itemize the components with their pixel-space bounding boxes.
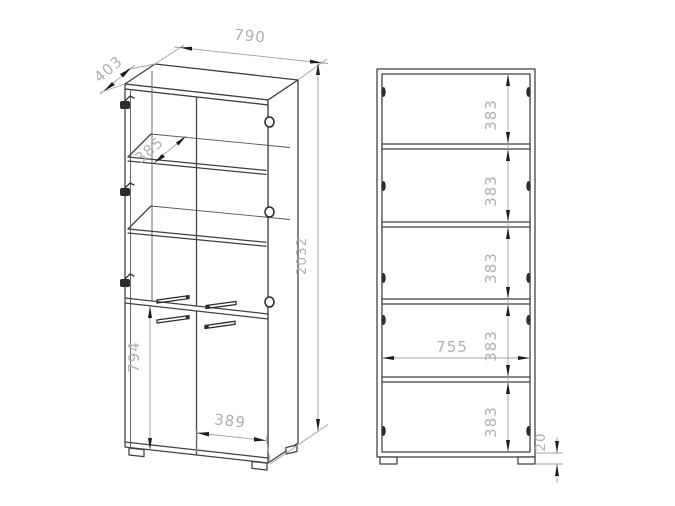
dim-label-door-width: 389 <box>213 410 246 431</box>
dim-label-door-height: 794 <box>125 341 143 373</box>
dim-label-spacing-3: 383 <box>482 252 500 284</box>
perspective-view <box>120 64 298 470</box>
dim-label-inner-width: 755 <box>436 338 468 356</box>
hinge-knob-icon <box>265 117 274 127</box>
dim-label-spacing-5: 383 <box>482 406 500 438</box>
cabinet-technical-drawing: 403 790 2032 385 <box>0 0 675 506</box>
dim-label-foot-height: 20 <box>533 432 549 451</box>
hinge-knob-icon <box>265 207 274 217</box>
hinge-knob-icon <box>265 297 274 307</box>
foot-front-left <box>129 448 144 457</box>
dim-label-spacing-1: 383 <box>482 99 500 131</box>
dim-label-height: 2032 <box>294 237 310 275</box>
foot-front-right <box>252 462 267 471</box>
carcass-outline <box>377 69 535 457</box>
foot-left <box>380 457 397 464</box>
drawing-canvas: 403 790 2032 385 <box>0 0 675 506</box>
foot-right <box>518 457 535 464</box>
dim-label-spacing-2: 383 <box>482 175 500 207</box>
elevation-view <box>377 69 535 464</box>
dim-label-spacing-4: 383 <box>482 330 500 362</box>
dim-label-width: 790 <box>233 25 266 46</box>
dim-foot-height: 20 <box>533 432 563 483</box>
dim-label-depth: 403 <box>90 52 126 86</box>
